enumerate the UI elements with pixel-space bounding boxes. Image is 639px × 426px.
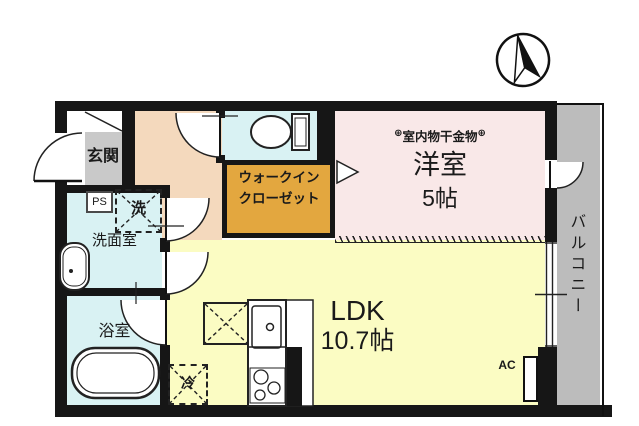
washroom-label: 洗面室	[67, 232, 162, 249]
fixtures-overlay	[0, 0, 639, 426]
hardware-symbol-right: ⊕	[478, 128, 486, 139]
ldk-size: 10.7帖	[290, 327, 425, 356]
ldk-door-icon	[166, 252, 208, 294]
western-room-size: 5帖	[350, 185, 530, 211]
ldk-label: LDK	[300, 295, 415, 327]
walk-in-closet-label: ウォークイン クローゼット	[224, 168, 334, 210]
balcony-label: バルコニー	[566, 193, 584, 338]
entrance-door-icon	[34, 133, 82, 181]
pipe-space-box: PS	[86, 191, 113, 213]
western-room-label: 洋室	[350, 150, 530, 181]
laundry-hardware-note: ⊕室内物干金物⊕	[350, 128, 530, 144]
walk-in-closet-line1: ウォークイン	[239, 170, 320, 185]
hardware-note-text: 室内物干金物	[402, 130, 477, 144]
floor-plan: PS 玄関 洗 洗面室 浴室 ウォークイン クローゼット ⊕室内物干金物⊕ 洋室…	[0, 0, 639, 426]
ac-unit-icon	[524, 357, 537, 401]
bathtub-icon	[72, 348, 159, 398]
bathroom-label: 浴室	[67, 323, 162, 341]
storage-box	[203, 302, 249, 345]
balcony-window-icon	[535, 242, 567, 347]
washer-label: 洗	[115, 200, 162, 217]
ac-label: AC	[492, 359, 522, 373]
toilet-icon	[251, 114, 309, 150]
walk-in-closet-line2: クローゼット	[239, 191, 320, 206]
toilet-door-icon	[176, 113, 238, 157]
sink-icon	[60, 243, 89, 290]
pipe-space-label: PS	[92, 196, 107, 208]
balcony-door-icon	[550, 161, 583, 189]
refrigerator-label: 冷	[168, 375, 208, 391]
north-arrow-icon	[492, 29, 554, 91]
entrance-label: 玄関	[83, 148, 123, 166]
shoe-cabinet-diagonal	[85, 112, 122, 131]
